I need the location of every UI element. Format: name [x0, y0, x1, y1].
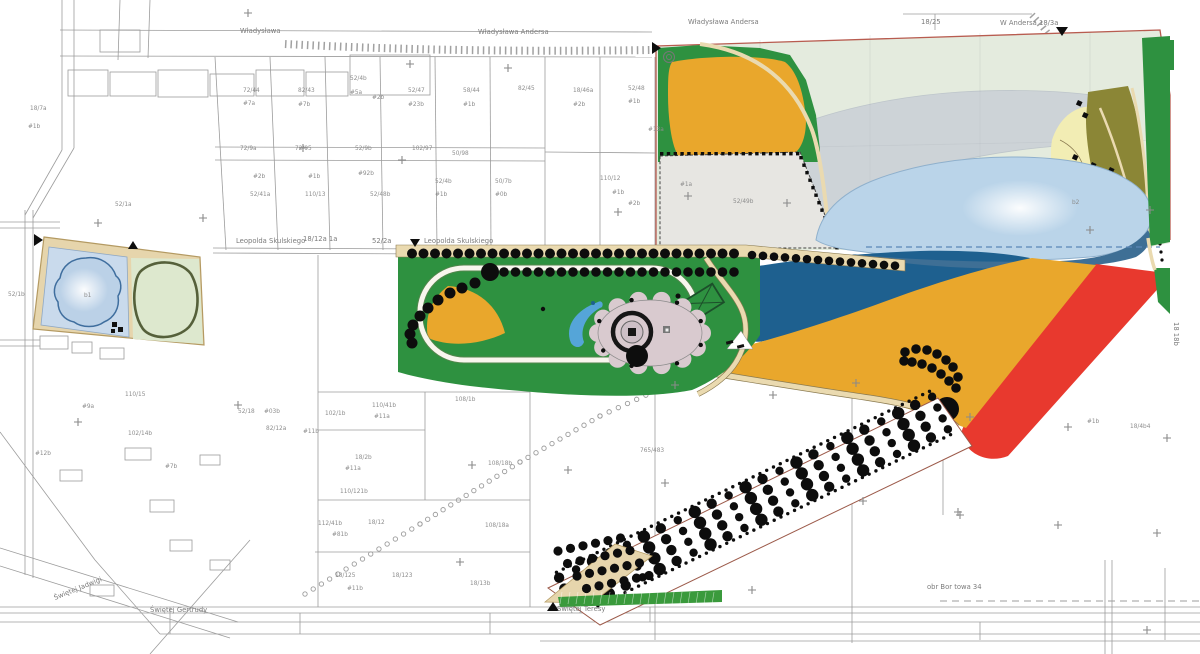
hedge-tooth [714, 152, 717, 155]
small-structure [112, 322, 117, 327]
parcel-label: 18/125 [335, 573, 356, 579]
orchard-tree-icon [578, 541, 587, 550]
hedge-tooth [796, 152, 799, 155]
cadastral-line [215, 147, 545, 148]
street-label: W Andersa 18/3a [1000, 19, 1058, 27]
cadastral-line [270, 57, 278, 250]
survey-cross [661, 479, 669, 487]
orchard-edge-dot [812, 446, 815, 449]
hedge-tooth [808, 179, 811, 182]
cadastral-line [150, 540, 250, 654]
parcel-label: #11b [303, 429, 319, 435]
tree-icon [499, 267, 509, 277]
orchard-tree-icon [944, 425, 952, 433]
survey-cross [456, 558, 464, 566]
cadastral-line [60, 56, 652, 57]
tree-icon [729, 267, 739, 277]
tree-icon [557, 267, 567, 277]
survey-cross [1163, 434, 1171, 442]
trail-stone [393, 537, 397, 541]
tree-icon [626, 345, 648, 367]
orchard-tree-icon [699, 527, 711, 539]
orchard-tree-icon [594, 581, 603, 590]
orchard-edge-dot [656, 521, 659, 524]
tree-icon [932, 349, 942, 359]
tree-icon [770, 252, 779, 261]
orchard-tree-icon [638, 530, 650, 542]
orchard-tree-icon [837, 464, 845, 472]
parcel-label: 18/12 [368, 520, 385, 526]
orchard-edge-dot [867, 419, 870, 422]
orchard-edge-dot [698, 555, 701, 558]
parcel-label: #11b [347, 586, 363, 592]
tree-icon [614, 249, 624, 259]
orchard-tree-icon [745, 492, 757, 504]
trail-stone [472, 488, 476, 492]
site-plan-page: 72/44#7a82/43#7b52/4b#5a#2b52/47#23b58/4… [0, 0, 1200, 654]
orchard-tree-icon [768, 495, 778, 505]
tree-icon [511, 267, 521, 277]
parcel-label: #0b [495, 192, 508, 198]
orchard-edge-dot [704, 498, 707, 501]
hedge-tooth [755, 152, 758, 155]
trail-stone [487, 479, 491, 483]
tree-icon [683, 267, 693, 277]
hedge-tooth [789, 152, 792, 155]
orchard-tree-icon [831, 453, 839, 461]
plaza-tree-dot [699, 319, 703, 323]
orchard-edge-dot [840, 486, 843, 489]
parcel-label: #11a [374, 414, 390, 420]
orchard-tree-icon [712, 509, 722, 519]
parcel-label: 72/44 [243, 88, 260, 94]
trail-stone [311, 587, 315, 591]
tree-icon [614, 267, 624, 277]
tree-icon [457, 283, 468, 294]
plaza-tree-dot [699, 343, 703, 347]
orchard-tree-icon [735, 513, 743, 521]
parcel-label: b2 [1072, 200, 1080, 206]
orchard-tree-icon [632, 574, 641, 583]
tree-icon [481, 263, 499, 281]
trail-stone [344, 567, 348, 571]
tree-icon [445, 288, 456, 299]
orchard-edge-dot [739, 535, 742, 538]
orchard-edge-dot [636, 531, 639, 534]
tree-icon [433, 295, 444, 306]
orchard-edge-dot [813, 499, 816, 502]
orchard-edge-dot [799, 452, 802, 455]
trail-stone [558, 437, 562, 441]
parcel-label: 52/9b [355, 146, 372, 152]
hedge-tooth [735, 152, 738, 155]
parcel-label: 82/43 [298, 88, 315, 94]
west-pond-block [33, 237, 204, 345]
orchard-edge-dot [745, 478, 748, 481]
site-plan-map: 72/44#7a82/43#7b52/4b#5a#2b52/47#23b58/4… [0, 0, 1200, 654]
hedge-tooth [667, 152, 670, 155]
tree-icon [729, 249, 739, 259]
cadastral-line [435, 57, 437, 250]
orchard-tree-icon [644, 571, 653, 580]
orchard-edge-dot [657, 574, 660, 577]
orange-meadow [668, 57, 806, 164]
tree-icon [836, 257, 845, 266]
tree-icon [781, 253, 790, 262]
tree-icon [927, 363, 937, 373]
parcel-label: #2b [628, 201, 641, 207]
building-outline [100, 30, 140, 52]
tree-icon [488, 249, 498, 259]
orchard-edge-dot [907, 399, 910, 402]
tree-icon [695, 249, 705, 259]
hedge-tooth [811, 186, 814, 189]
orchard-edge-dot [928, 443, 931, 446]
orchard-tree-icon [607, 579, 616, 588]
tree-icon [430, 249, 440, 259]
orchard-tree-icon [603, 536, 612, 545]
orchard-tree-icon [635, 558, 644, 567]
tree-icon [541, 307, 545, 311]
tree-icon [706, 249, 716, 259]
trail-stone [582, 423, 586, 427]
orchard-tree-icon [882, 428, 890, 436]
orchard-edge-dot [630, 588, 633, 591]
orchard-belt [545, 390, 972, 625]
trail-stone [319, 582, 323, 586]
orchard-tree-icon [908, 440, 920, 452]
orchard-tree-icon [808, 449, 818, 459]
parcel-label: #1b [463, 102, 476, 108]
parcel-label: 58/44 [463, 88, 480, 94]
orchard-edge-dot [670, 515, 673, 518]
hedge-tooth [776, 152, 779, 155]
orchard-tree-icon [897, 418, 909, 430]
parcel-label: 110/12 [600, 176, 621, 182]
hedge-tooth [799, 156, 802, 159]
tree-icon [917, 359, 927, 369]
tree-icon [759, 252, 768, 261]
lake-highlight [962, 180, 1078, 236]
orchard-tree-icon [786, 488, 794, 496]
trail-stone [385, 542, 389, 546]
orchard-tree-icon [689, 548, 697, 556]
orchard-edge-dot [725, 542, 728, 545]
orchard-tree-icon [666, 545, 676, 555]
survey-cross [564, 466, 572, 474]
orchard-edge-dot [664, 571, 667, 574]
hedge-tooth [805, 171, 808, 174]
hedge-tooth [721, 152, 724, 155]
survey-cross [1153, 529, 1161, 537]
hedge-tooth [802, 164, 805, 167]
tree-icon [792, 254, 801, 263]
small-structure [111, 329, 115, 333]
orchard-edge-dot [847, 482, 850, 485]
orchard-edge-dot [724, 488, 727, 491]
orchard-tree-icon [653, 563, 665, 575]
street-label: 18/12a 1a [303, 235, 337, 243]
hedge-tooth [708, 152, 711, 155]
building-outline [60, 470, 82, 481]
tree-icon [936, 369, 946, 379]
tree-icon [660, 249, 670, 259]
orchard-edge-dot [921, 393, 924, 396]
tree-icon [415, 311, 426, 322]
parcel-label: 52/4b [350, 76, 367, 82]
orchard-edge-dot [949, 433, 952, 436]
orchard-edge-dot [684, 508, 687, 511]
orchard-edge-dot [643, 528, 646, 531]
parcel-label: #1b [28, 124, 41, 130]
orchard-tree-icon [585, 569, 594, 578]
tree-icon [511, 249, 521, 259]
orchard-tree-icon [656, 523, 666, 533]
parcel-label: 18/4b4 [1130, 424, 1151, 430]
plaza-tree-dot [675, 300, 679, 304]
parcel-label: 52/41a [250, 192, 271, 198]
orchard-edge-dot [901, 403, 904, 406]
trail-stone [303, 592, 307, 596]
building-outline [100, 348, 124, 359]
parcel-label: #81b [332, 532, 348, 538]
parcel-label: #2b [573, 102, 586, 108]
tree-icon [534, 249, 544, 259]
orchard-edge-dot [901, 456, 904, 459]
parcel-label: #1b [1087, 419, 1100, 425]
parcel-label: 102/1b [325, 411, 346, 417]
orchard-tree-icon [679, 527, 687, 535]
parcel-label: #5a [350, 90, 363, 96]
tree-icon [649, 249, 659, 259]
street-label: Świętej Gertrudy [150, 605, 207, 614]
orchard-tree-icon [610, 564, 619, 573]
cadastral-line [148, 0, 150, 58]
orchard-edge-dot [677, 511, 680, 514]
orchard-tree-icon [600, 551, 609, 560]
orchard-tree-icon [706, 498, 716, 508]
orchard-tree-icon [826, 442, 834, 450]
orchard-tree-icon [694, 517, 706, 529]
parcel-label: 102/14b [128, 431, 152, 437]
trail-stone [625, 401, 629, 405]
tree-icon [637, 267, 647, 277]
parcel-label: 110/121b [340, 489, 368, 495]
parcel-label: #2b [372, 95, 385, 101]
street-label: Władysława Andersa [478, 28, 549, 36]
orchard-edge-dot [914, 396, 917, 399]
parcel-label: #7b [298, 102, 311, 108]
orchard-edge-dot [793, 509, 796, 512]
orchard-tree-icon [846, 443, 858, 455]
tree-icon [672, 249, 682, 259]
tree-icon [941, 355, 951, 365]
orchard-tree-icon [796, 467, 808, 479]
orchard-edge-dot [874, 469, 877, 472]
tree-icon [465, 249, 475, 259]
orchard-tree-icon [588, 554, 597, 563]
orchard-edge-dot [887, 409, 890, 412]
orchard-edge-dot [854, 479, 857, 482]
green-sliver [1154, 268, 1170, 314]
orchard-tree-icon [575, 556, 584, 565]
tree-icon [499, 249, 509, 259]
orchard-tree-icon [684, 538, 692, 546]
tree-icon [626, 249, 636, 259]
survey-cross [504, 64, 512, 72]
orchard-tree-icon [824, 482, 834, 492]
orchard-tree-icon [622, 561, 631, 570]
tree-icon [470, 278, 481, 289]
street-label: 18 18b [1172, 322, 1180, 346]
street-label: obr Bor towa 34 [927, 583, 982, 591]
parcel-label: 52/48b [370, 192, 391, 198]
orchard-tree-icon [875, 457, 885, 467]
orchard-edge-dot [595, 551, 598, 554]
orchard-edge-dot [853, 426, 856, 429]
tree-icon [869, 260, 878, 269]
parcel-label: 72/95 [295, 146, 312, 152]
street-label: Władysława Andersa [688, 18, 759, 26]
survey-cross [234, 401, 242, 409]
hedge-tooth [820, 209, 823, 212]
tree-icon [649, 267, 659, 277]
trail-stone [360, 557, 364, 561]
pond-highlight [60, 268, 108, 312]
building-outline [158, 70, 208, 97]
tree-icon [534, 267, 544, 277]
orchard-edge-dot [860, 423, 863, 426]
building-outline [72, 342, 92, 353]
orchard-edge-dot [690, 505, 693, 508]
tree-icon [718, 267, 728, 277]
parcel-label: #92b [358, 171, 374, 177]
orchard-tree-icon [750, 503, 762, 515]
tree-icon [545, 249, 555, 259]
hedge-tooth [674, 152, 677, 155]
survey-cross [244, 9, 252, 17]
tree-icon [423, 303, 434, 314]
trail-stone [542, 446, 546, 450]
trail-stone [526, 455, 530, 459]
cadastral-line [215, 160, 545, 161]
survey-cross [769, 391, 777, 399]
trail-stone [607, 410, 611, 414]
orchard-edge-dot [928, 390, 931, 393]
orchard-edge-dot [745, 532, 748, 535]
orchard-edge-dot [785, 459, 788, 462]
survey-cross [199, 214, 207, 222]
tree-icon [899, 356, 909, 366]
parcel-label: 50/98 [452, 151, 469, 157]
street-label: Leopolda Skulskiego [424, 237, 493, 245]
parcel-label: 110/41b [372, 403, 396, 409]
hedge-tooth [814, 194, 817, 197]
hedge-tooth [728, 152, 731, 155]
orchard-edge-dot [711, 495, 714, 498]
parcel-label: 18/46a [573, 88, 594, 94]
trail-stone [590, 418, 594, 422]
parcel-label: #2b [253, 174, 266, 180]
orchard-edge-dot [922, 446, 925, 449]
parcel-label: 72/9a [240, 146, 257, 152]
orchard-edge-dot [555, 571, 558, 574]
orchard-edge-dot [718, 492, 721, 495]
orchard-tree-icon [674, 516, 682, 524]
cadastral-line [490, 57, 491, 250]
survey-cross [1143, 626, 1151, 634]
street-label: 18/25 [921, 18, 941, 26]
orchard-edge-dot [779, 462, 782, 465]
orchard-tree-icon [877, 417, 885, 425]
tree-icon [580, 267, 590, 277]
orchard-tree-icon [928, 393, 936, 401]
orchard-tree-icon [806, 489, 818, 501]
orchard-edge-dot [935, 440, 938, 443]
kiosk-icon [666, 329, 669, 332]
trail-stone [401, 532, 405, 536]
tree-icon [948, 362, 958, 372]
hedge-tooth [817, 201, 820, 204]
orchard-tree-icon [563, 559, 572, 568]
tree-icon [825, 256, 834, 265]
orchard-tree-icon [730, 502, 738, 510]
orchard-tree-icon [625, 546, 634, 555]
hedge-tooth [742, 152, 745, 155]
street-label: Świętej Teresy [557, 604, 605, 613]
orchard-tree-icon [781, 477, 789, 485]
trail-stone [502, 469, 506, 473]
cadastral-line [545, 152, 655, 153]
tree-icon [603, 249, 613, 259]
tree-icon [858, 259, 867, 268]
parcel-label: 52/4b [435, 179, 452, 185]
tree-icon [568, 249, 578, 259]
plaza-tree-dot [629, 298, 633, 302]
parcel-label: #13a [648, 127, 664, 133]
tree-icon [637, 249, 647, 259]
tree-icon [911, 344, 921, 354]
orchard-edge-dot [880, 413, 883, 416]
orchard-tree-icon [892, 407, 904, 419]
orchard-edge-dot [711, 548, 714, 551]
cadastral-line [325, 57, 330, 250]
orchard-tree-icon [717, 520, 727, 530]
survey-cross [406, 60, 414, 68]
crescent-dot [591, 301, 595, 305]
survey-cross [468, 461, 476, 469]
tree-icon [476, 249, 486, 259]
hedge-tooth [687, 152, 690, 155]
orchard-tree-icon [619, 576, 628, 585]
tree-icon [706, 267, 716, 277]
orchard-tree-icon [740, 524, 748, 532]
orchard-tree-icon [689, 506, 701, 518]
orchard-edge-dot [827, 492, 830, 495]
plaza-tree-dot [675, 361, 679, 365]
tree-icon [803, 255, 812, 264]
orchard-tree-icon [775, 467, 783, 475]
hedge-tooth [748, 152, 751, 155]
tree-icon [718, 249, 728, 259]
orchard-tree-icon [933, 403, 941, 411]
tree-icon [522, 267, 532, 277]
survey-cross [1064, 423, 1072, 431]
tree-icon [683, 249, 693, 259]
tree-icon [814, 256, 823, 265]
parcel-label: #11a [345, 466, 361, 472]
orchard-edge-dot [738, 482, 741, 485]
